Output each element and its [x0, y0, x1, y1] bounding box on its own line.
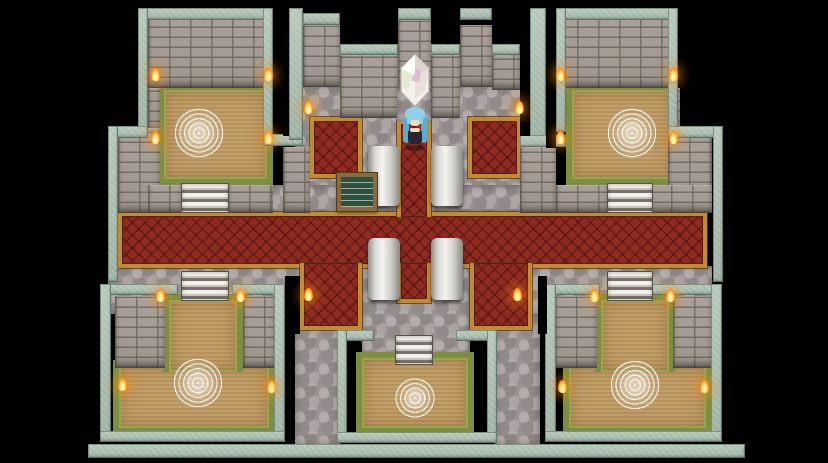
torch-icon: [304, 101, 313, 114]
wall-topleft-face: [148, 18, 273, 88]
magic-circle-topleft: [173, 107, 225, 159]
torch-icon: [669, 68, 678, 81]
edge-bottomright-right: [711, 284, 722, 442]
torch-icon: [118, 378, 127, 391]
edge-topright-right-lo: [713, 126, 723, 282]
torch-icon: [304, 288, 313, 301]
torch-icon: [236, 289, 245, 302]
torch-icon: [264, 68, 273, 81]
wall-farright-face: [492, 54, 520, 90]
magic-circle-bottomleft: [172, 357, 224, 409]
slot-right-a: [520, 18, 530, 136]
torch-icon: [515, 101, 524, 114]
torch-icon: [267, 380, 276, 393]
cobble-right-passage: [495, 314, 540, 445]
torch-icon: [151, 131, 160, 144]
edge-bottomright-bottom: [545, 431, 722, 442]
torch-icon: [513, 288, 522, 301]
pier-bottomleft-l: [115, 296, 165, 368]
slot-left: [283, 18, 289, 136]
notice-board[interactable]: [337, 173, 377, 211]
slot-right-b: [546, 18, 556, 148]
fin-left: [289, 8, 303, 140]
stairs-room-bottomcenter[interactable]: [396, 336, 432, 364]
cap-farright: [492, 44, 520, 55]
edge-topleft-left-hi: [138, 8, 148, 132]
torch-icon: [556, 131, 565, 144]
pier-center-right: [520, 147, 556, 213]
slot-bottomright: [538, 276, 547, 334]
wall-midleft-face: [340, 55, 398, 118]
edge-bottomcenter-left: [337, 330, 347, 443]
torch-icon: [156, 289, 165, 302]
edge-topright-top: [556, 8, 678, 20]
edge-bottomleft-right: [274, 284, 285, 442]
edge-bottomleft-top-l: [100, 284, 178, 295]
edge-bottomcenter-bottom: [337, 432, 497, 443]
carpet-hall-horizontal: [118, 212, 707, 268]
torch-icon: [700, 380, 709, 393]
pier-bottomleft-r: [243, 296, 275, 368]
edge-topleft-left-lo: [108, 126, 118, 282]
magic-circle-bottomright: [609, 359, 661, 411]
edge-bottomleft-left: [100, 284, 111, 442]
character-chest-skin: [410, 128, 420, 132]
cap-tower-left: [303, 13, 340, 25]
torch-icon: [666, 289, 675, 302]
torch-icon: [669, 131, 678, 144]
slot-bottomleft: [285, 276, 300, 334]
edge-bottomleft-bottom: [100, 431, 285, 442]
pier-topleft-stairs-r: [228, 185, 273, 213]
pier-center-left: [283, 147, 310, 213]
fin-right: [530, 8, 546, 140]
pillar-southwest: [368, 238, 400, 300]
stairs-room-bottomright[interactable]: [608, 272, 652, 300]
player-character[interactable]: [402, 105, 428, 152]
character-shadow: [405, 145, 425, 151]
edge-bottomcenter-right: [487, 330, 497, 443]
torch-icon: [590, 289, 599, 302]
bottom-rampart-bar: [88, 444, 745, 458]
cap-midright: [431, 44, 460, 55]
cobble-left-passage: [295, 314, 340, 445]
torch-icon: [151, 68, 160, 81]
cap-tower-right: [460, 8, 492, 20]
carpet-leg-bottomright: [470, 263, 532, 330]
torch-icon: [264, 131, 273, 144]
carpet-square-topleft: [310, 117, 362, 178]
character-hair-bangs-l: [407, 116, 411, 124]
magic-circle-topright: [606, 107, 658, 159]
pier-topleft-stairs-l: [148, 185, 182, 213]
pier-topright-stairs-r: [650, 185, 712, 213]
character-hair-bangs-r: [419, 116, 423, 124]
pillar-southeast: [431, 238, 463, 300]
pillar-northeast: [431, 146, 463, 206]
stairs-room-bottomleft[interactable]: [182, 272, 228, 300]
stairs-room-topleft[interactable]: [182, 184, 228, 212]
carpet-square-topright: [468, 117, 521, 178]
wall-topright-face: [556, 18, 678, 88]
pier-bottomright-r: [673, 296, 712, 368]
tower-right-face: [460, 25, 492, 87]
pier-topright-stairs-l: [556, 185, 608, 213]
cap-tower-center: [398, 8, 431, 20]
edge-topleft-top: [138, 8, 273, 20]
torch-icon: [558, 380, 567, 393]
carpet-aisle-bottom: [397, 263, 431, 303]
stairs-room-topright[interactable]: [608, 184, 652, 212]
game-viewport[interactable]: [0, 0, 828, 463]
cap-midleft: [340, 44, 398, 55]
wall-midright-face: [431, 55, 460, 118]
wall-topleft-side-a: [148, 88, 160, 132]
torch-icon: [556, 68, 565, 81]
save-crystal[interactable]: [397, 54, 433, 107]
magic-circle-bottomcenter: [395, 378, 435, 418]
pier-bottomright-l: [555, 296, 597, 368]
tower-left-face: [303, 25, 340, 87]
